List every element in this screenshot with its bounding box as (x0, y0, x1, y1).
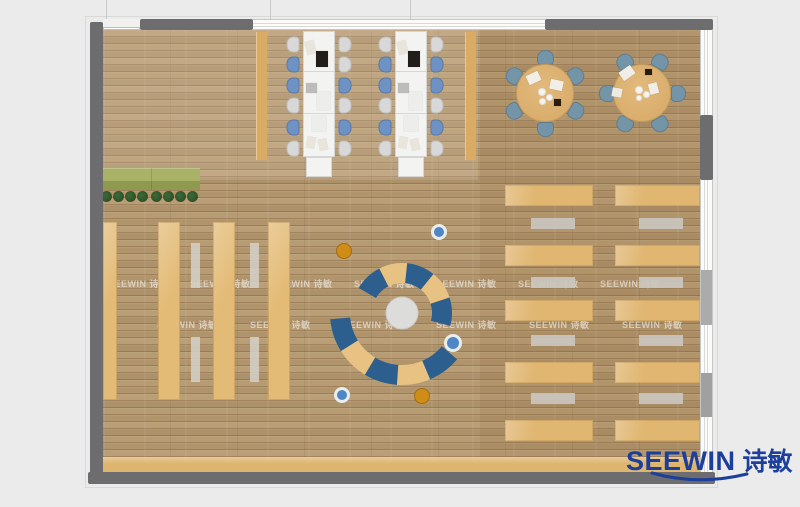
desk-item (316, 51, 328, 67)
desk-seam (395, 113, 427, 114)
bottom-counter (100, 457, 700, 472)
shelf-row (615, 362, 700, 383)
pouf-blue (444, 334, 462, 352)
wall-tick (410, 0, 411, 19)
bookshelf-column (103, 222, 117, 400)
desk-chair (379, 37, 392, 53)
right-wall-mid (700, 115, 713, 180)
desk-seam (303, 71, 335, 72)
reading-bench (191, 243, 200, 288)
top-window-band (253, 19, 545, 30)
shelf-row (615, 185, 700, 206)
desk-chair (339, 141, 352, 157)
desk-chair (287, 141, 300, 157)
plate (635, 86, 643, 94)
bench-row (639, 218, 683, 229)
desk-chair (287, 57, 300, 73)
pouf-blue (431, 224, 447, 240)
wall-tick (106, 0, 107, 20)
table-item (611, 87, 622, 98)
desk-item (317, 92, 330, 110)
window-shelf-strip (256, 32, 267, 160)
shelf-row (505, 185, 593, 206)
desk-chair (431, 37, 444, 53)
desk-seam (303, 113, 335, 114)
bench-row (639, 335, 683, 346)
plant-icon (151, 191, 162, 202)
plant-icon (137, 191, 148, 202)
table-item (554, 99, 561, 106)
left-wall (90, 22, 103, 484)
plant-icon (163, 191, 174, 202)
wall-panel (701, 270, 712, 325)
bench-row (531, 218, 575, 229)
wall-panel (701, 373, 712, 417)
desk-chair (379, 141, 392, 157)
brand-wordmark: SEEWIN (626, 448, 736, 475)
desk-chair (431, 141, 444, 157)
entry-door-line (103, 27, 140, 30)
desk-chair (379, 120, 392, 136)
desk-item (404, 116, 418, 131)
reading-bench (191, 337, 200, 382)
desk-chair (339, 98, 352, 114)
bottom-wall (88, 472, 715, 484)
desk-chair (379, 78, 392, 94)
office-floor-plan: SEEWIN 诗敏 SEEWIN 诗敏SEEWIN 诗敏SEEWIN 诗敏SEE… (0, 0, 800, 507)
shelf-row (615, 300, 700, 321)
pouf-blue (334, 387, 350, 403)
plate (539, 98, 546, 105)
window-shelf-strip (465, 32, 476, 160)
bookshelf-column (268, 222, 290, 400)
brand-cjk: 诗敏 (743, 448, 793, 477)
top-wall-left (140, 19, 253, 30)
table-chair (671, 85, 686, 102)
desk-chair (287, 37, 300, 53)
shelf-row (615, 245, 700, 266)
pouf-orange (414, 388, 430, 404)
logo-swoosh-icon (650, 471, 750, 484)
table-chair (537, 50, 554, 65)
desk-chair (339, 120, 352, 136)
desk-chair (339, 78, 352, 94)
plate (643, 91, 650, 98)
top-wall-right (545, 19, 713, 30)
desk-end-table (306, 157, 332, 177)
brand-logo: SEEWIN 诗敏 (626, 448, 793, 477)
plate (546, 94, 553, 101)
wall-tick (270, 0, 271, 19)
shelf-row (505, 420, 593, 441)
desk-chair (379, 57, 392, 73)
desk-chair (431, 78, 444, 94)
desk-chair (339, 57, 352, 73)
desk-item (408, 51, 420, 67)
desk-item (409, 92, 422, 110)
desk-chair (431, 120, 444, 136)
desk-chair (379, 98, 392, 114)
desk-item (398, 83, 409, 93)
bench-row (531, 277, 575, 288)
plate (538, 88, 546, 96)
bookshelf-column (213, 222, 235, 400)
plant-icon (187, 191, 198, 202)
table-item (645, 69, 652, 75)
bench-row (531, 335, 575, 346)
shelf-row (505, 300, 593, 321)
planter-seam (151, 168, 152, 190)
desk-seam (395, 71, 427, 72)
plant-icon (125, 191, 136, 202)
desk-item (312, 116, 326, 131)
desk-chair (431, 98, 444, 114)
plate (636, 95, 642, 101)
desk-chair (431, 57, 444, 73)
bench-row (531, 393, 575, 404)
plant-icon (175, 191, 186, 202)
lounge-center-table (386, 297, 418, 329)
shelf-row (615, 420, 700, 441)
desk-chair (339, 37, 352, 53)
bench-row (639, 393, 683, 404)
desk-chair (287, 120, 300, 136)
desk-item (306, 83, 317, 93)
table-chair (537, 122, 554, 137)
reading-bench (250, 243, 259, 288)
bench-row (639, 277, 683, 288)
plant-icon (113, 191, 124, 202)
pouf-orange (336, 243, 352, 259)
reading-bench (250, 337, 259, 382)
shelf-row (505, 362, 593, 383)
bookshelf-column (158, 222, 180, 400)
desk-end-table (398, 157, 424, 177)
desk-chair (287, 78, 300, 94)
desk-chair (287, 98, 300, 114)
shelf-row (505, 245, 593, 266)
